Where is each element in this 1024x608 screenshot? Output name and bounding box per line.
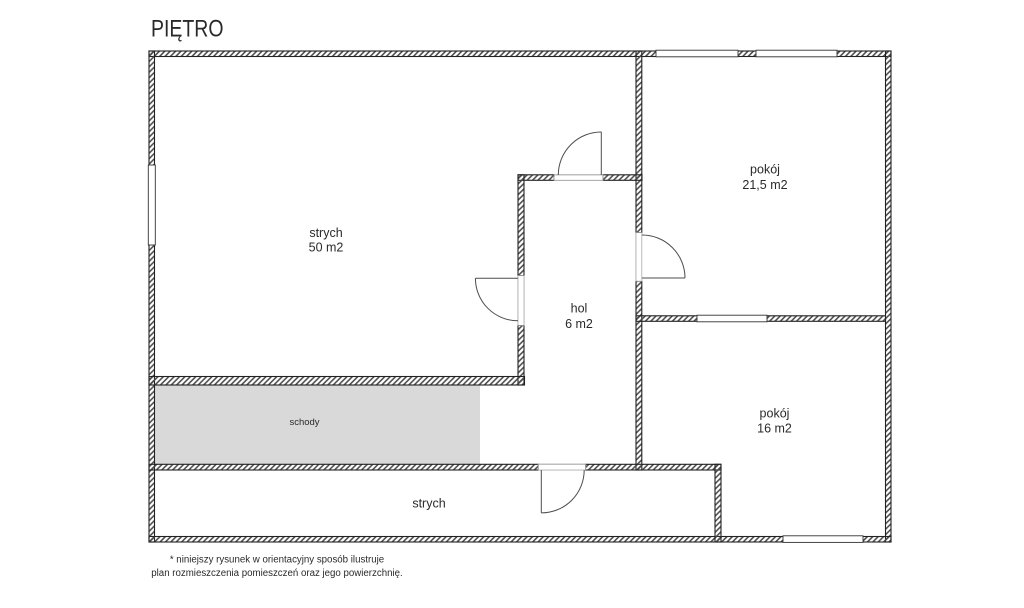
svg-text:50 m2: 50 m2: [309, 241, 344, 255]
svg-text:* niniejszy rysunek w orientac: * niniejszy rysunek w orientacyjny sposó…: [170, 555, 384, 566]
svg-text:strych: strych: [309, 226, 342, 240]
svg-text:pokój: pokój: [750, 163, 780, 177]
svg-text:16 m2: 16 m2: [757, 422, 792, 436]
svg-text:plan rozmieszczenia pomieszcze: plan rozmieszczenia pomieszczeń oraz jeg…: [151, 568, 402, 579]
svg-text:hol: hol: [571, 302, 588, 316]
svg-text:strych: strych: [412, 497, 445, 511]
svg-text:21,5 m2: 21,5 m2: [742, 178, 787, 192]
svg-text:pokój: pokój: [760, 407, 790, 421]
svg-text:6 m2: 6 m2: [565, 317, 593, 331]
svg-text:schody: schody: [289, 417, 319, 428]
svg-text:PIĘTRO: PIĘTRO: [151, 16, 224, 43]
